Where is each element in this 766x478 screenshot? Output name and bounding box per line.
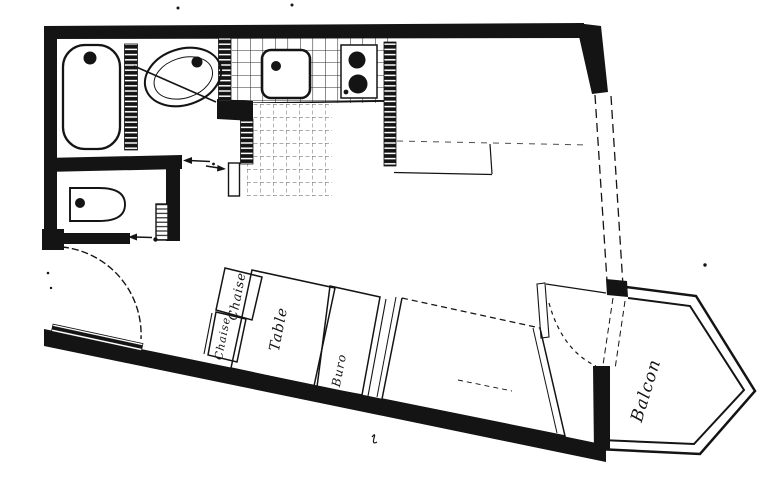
washbasin: [137, 38, 228, 115]
burner-icon: [349, 52, 366, 69]
speck: [47, 272, 50, 275]
washbasin-drain-icon: [192, 57, 203, 68]
entry-arrow-left-icon: [183, 157, 192, 164]
bed-head-dashed-edge: [402, 298, 540, 328]
balcony-wall-block: [606, 279, 628, 297]
label-desk: Buro: [329, 352, 349, 389]
speck: [177, 7, 180, 10]
kitchen-mainroom-partition: [384, 42, 396, 166]
speck: [50, 287, 52, 289]
entry-door-swing: [62, 247, 141, 339]
upper-right-corner-wall: [576, 23, 608, 94]
entry-arrow-right-icon: [217, 165, 226, 172]
label-table: Table: [267, 306, 291, 353]
radiator: [156, 204, 168, 240]
wardrobe-bottom-edge: [394, 173, 492, 175]
bathroom-bottom-wall: [44, 155, 182, 172]
burner-icon: [349, 75, 368, 94]
floor-plan-page: Chaise Chaise Table Buro Balcon: [0, 0, 766, 478]
window-wall-line-outer: [595, 95, 607, 281]
balcony-inner-rail: [601, 298, 744, 444]
kitchen-sink: [262, 50, 310, 98]
kitchen: [232, 36, 390, 196]
entry-hall: [62, 157, 240, 339]
basin-room-door-leaf: [134, 66, 216, 102]
kitchen-door-leaf: [229, 163, 240, 196]
wardrobe-dashed-front: [397, 141, 588, 145]
sink-drain-icon: [271, 61, 281, 71]
balcony-door-leaf: [537, 283, 549, 338]
kitchen-entry-lintel: [217, 99, 253, 121]
top-wall: [44, 23, 585, 39]
stray-mark: [372, 435, 377, 443]
wc-bottom-wall: [58, 233, 130, 244]
label-balcony: Balcon: [627, 357, 665, 426]
window-wall-line-inner: [611, 96, 623, 286]
entry-arrow-right-shaft: [206, 166, 219, 168]
entry-arrow-dot: [212, 163, 215, 166]
speck: [291, 4, 294, 7]
stove-knob-icon: [344, 90, 349, 95]
balcony-door-jamb: [603, 298, 613, 365]
floor-plan-drawing: Chaise Chaise Table Buro Balcon: [0, 0, 766, 478]
kitchen-hall-partition: [241, 119, 254, 164]
washbasin-outer: [137, 38, 228, 115]
toilet-flush-icon: [75, 198, 85, 208]
main-room: [394, 95, 623, 286]
label-chair-top: Chaise: [225, 271, 249, 322]
label-chair-bottom: Chaise: [212, 316, 233, 361]
bathtub-drain-icon: [84, 52, 97, 65]
wardrobe-side-edge: [490, 144, 492, 174]
chair-bottom-edge-line: [204, 313, 212, 354]
bathroom: [63, 38, 229, 149]
balcony-door-jamb: [615, 301, 625, 369]
bed-left-double-line: [377, 297, 396, 397]
bed-right-double-line: [533, 328, 557, 433]
kitchen-floor-tiles: [245, 103, 332, 196]
bath-basin-partition: [125, 44, 138, 150]
balcony-door-header: [546, 284, 606, 293]
speck: [703, 263, 706, 266]
left-wall: [44, 26, 57, 249]
bed-fold-line: [458, 380, 512, 391]
desk: [317, 286, 380, 395]
entry-arrow-left-shaft: [189, 161, 210, 162]
wc-arrow-dot: [153, 237, 157, 241]
balcony-door-swing: [549, 303, 596, 366]
